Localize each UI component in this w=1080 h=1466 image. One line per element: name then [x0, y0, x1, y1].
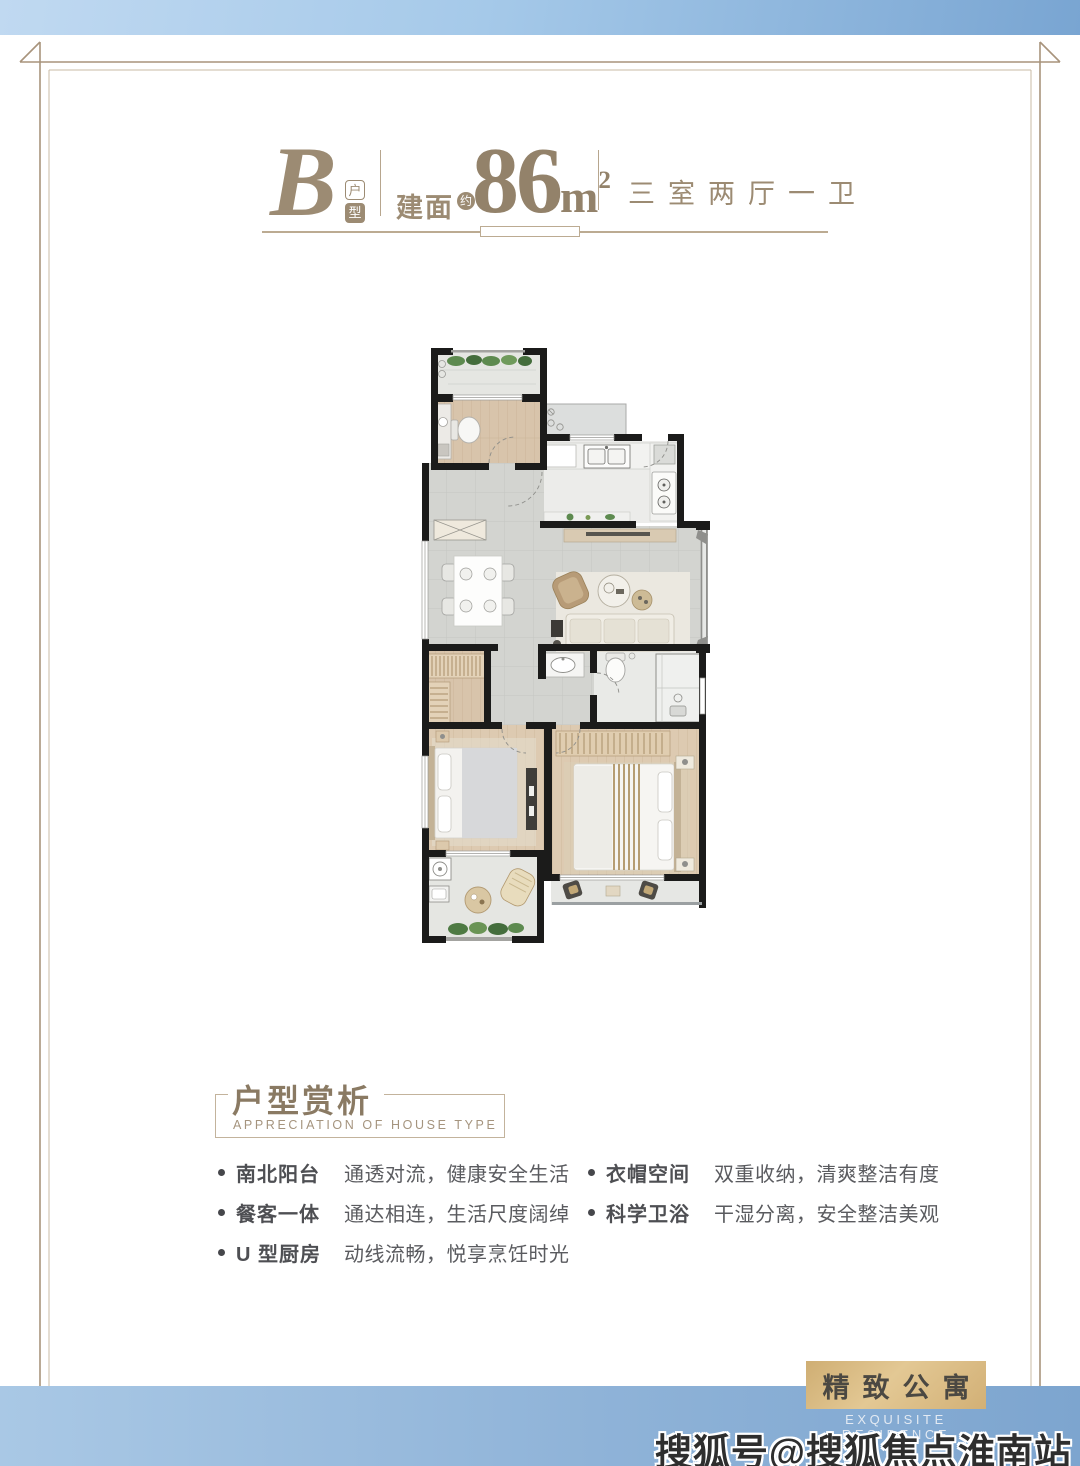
residence-badge: 精致公寓: [806, 1361, 986, 1409]
feature-list-right: 衣帽空间 双重收纳，清爽整洁有度 科学卫浴 干湿分离，安全整洁美观: [588, 1152, 940, 1232]
area-number: 86: [472, 129, 560, 233]
area-superscript: 2: [598, 167, 611, 194]
feature-label: 科学卫浴: [606, 1198, 704, 1227]
feature-label: U 型厨房: [236, 1238, 334, 1267]
feature-row: 南北阳台 通透对流，健康安全生活: [218, 1152, 570, 1192]
feature-description: 双重收纳，清爽整洁有度: [714, 1158, 940, 1187]
page: B 户 型 建面 约 86m2 三室两厅一卫: [0, 0, 1080, 1466]
feature-description: 通达相连，生活尺度阔绰: [344, 1198, 570, 1227]
feature-description: 动线流畅，悦享烹饪时光: [344, 1238, 570, 1267]
area-label: 建面: [396, 186, 454, 225]
feature-label: 南北阳台: [236, 1158, 334, 1187]
header-rule-ornament: [480, 226, 580, 237]
watermark-text: 搜狐号@搜狐焦点淮南站: [655, 1422, 1072, 1466]
analysis-title: 户型赏析: [228, 1076, 384, 1122]
floor-plan: [418, 348, 710, 943]
plan-type-badge: 户 型: [345, 180, 365, 226]
bullet-icon: [218, 1169, 225, 1176]
feature-label: 餐客一体: [236, 1198, 334, 1227]
plan-type-badge-top: 户: [345, 180, 365, 200]
feature-row: 科学卫浴 干湿分离，安全整洁美观: [588, 1192, 940, 1232]
plan-type-badge-bottom: 型: [345, 203, 365, 223]
room-layout-text: 三室两厅一卫: [628, 172, 868, 211]
floor-plan-svg: [418, 348, 710, 943]
feature-label: 衣帽空间: [606, 1158, 704, 1187]
area-unit: m: [560, 171, 598, 222]
feature-list-left: 南北阳台 通透对流，健康安全生活 餐客一体 通达相连，生活尺度阔绰 U 型厨房 …: [218, 1152, 570, 1272]
residence-badge-title: 精致公寓: [823, 1366, 983, 1405]
header-divider-left: [380, 150, 381, 216]
bullet-icon: [588, 1169, 595, 1176]
feature-description: 通透对流，健康安全生活: [344, 1158, 570, 1187]
analysis-subtitle: APPRECIATION OF HOUSE TYPE: [233, 1118, 497, 1132]
feature-row: U 型厨房 动线流畅，悦享烹饪时光: [218, 1232, 570, 1272]
area-value: 86m2: [472, 140, 611, 223]
feature-row: 餐客一体 通达相连，生活尺度阔绰: [218, 1192, 570, 1232]
header-divider-right: [598, 150, 599, 210]
bullet-icon: [218, 1249, 225, 1256]
header-rule: [262, 231, 828, 233]
plan-type-letter: B: [270, 132, 337, 232]
feature-row: 衣帽空间 双重收纳，清爽整洁有度: [588, 1152, 940, 1192]
feature-description: 干湿分离，安全整洁美观: [714, 1198, 940, 1227]
bullet-icon: [588, 1209, 595, 1216]
bullet-icon: [218, 1209, 225, 1216]
